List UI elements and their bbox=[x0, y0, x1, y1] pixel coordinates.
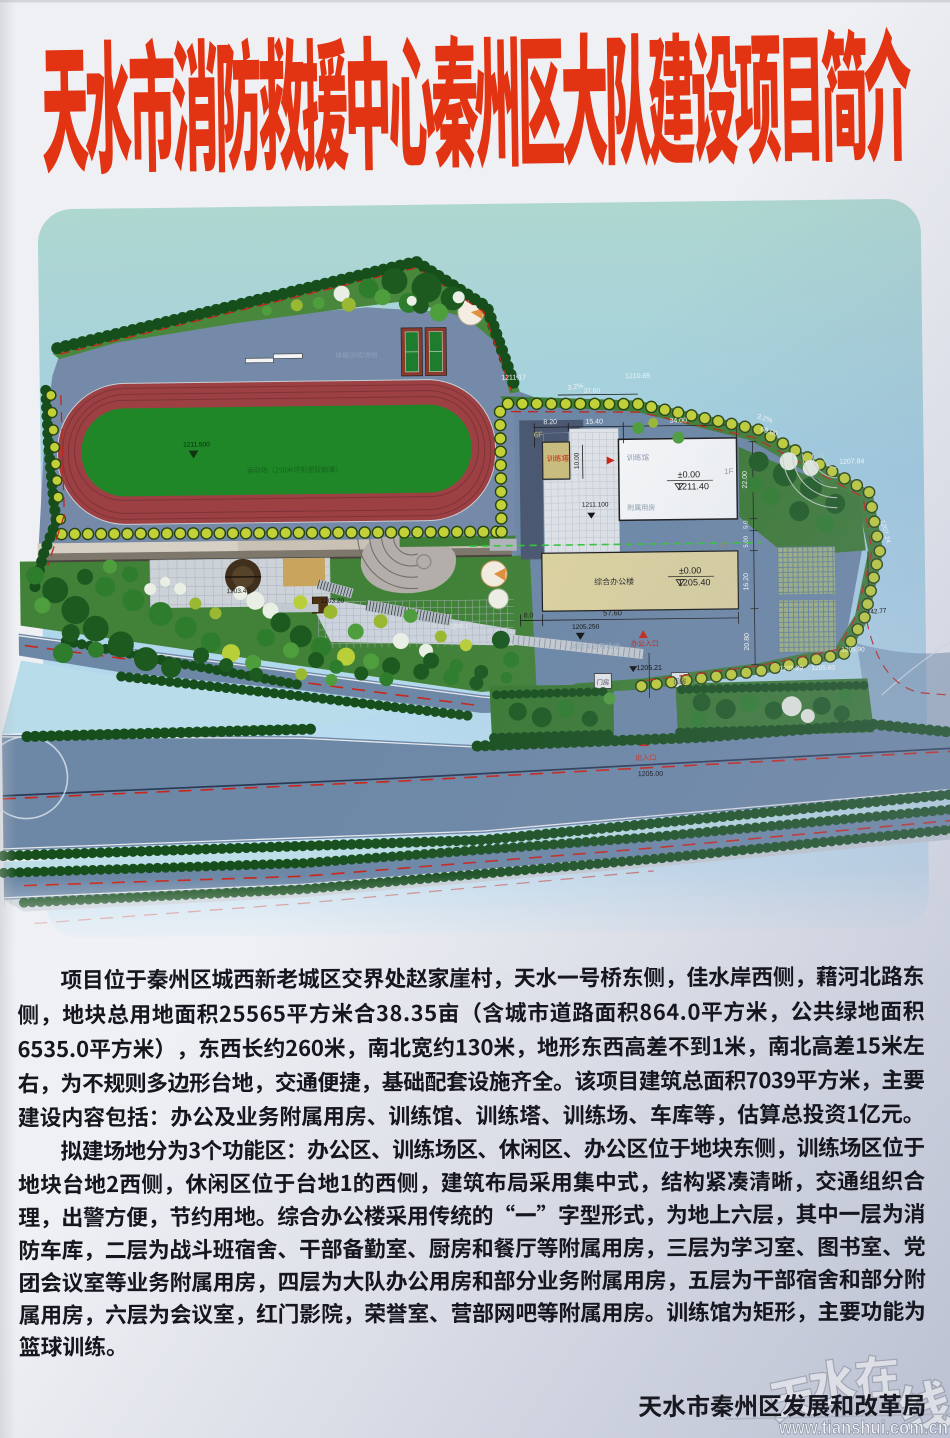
svg-text:1211.17: 1211.17 bbox=[501, 374, 526, 381]
svg-text:10.00: 10.00 bbox=[574, 452, 581, 469]
svg-text:15.40: 15.40 bbox=[585, 419, 603, 426]
svg-text:±0.00: ±0.00 bbox=[678, 469, 701, 479]
svg-text:34.00: 34.00 bbox=[669, 417, 687, 424]
svg-text:20.80: 20.80 bbox=[744, 633, 751, 651]
svg-text:1205.90: 1205.90 bbox=[841, 646, 865, 653]
svg-text:1205.1: 1205.1 bbox=[449, 624, 468, 630]
svg-text:1205.00: 1205.00 bbox=[638, 771, 663, 778]
svg-text:16.20: 16.20 bbox=[743, 573, 750, 591]
svg-text:22.00: 22.00 bbox=[742, 471, 749, 489]
svg-text:1205.250: 1205.250 bbox=[572, 624, 600, 631]
svg-text:1205.60: 1205.60 bbox=[811, 665, 835, 672]
svg-text:8.20: 8.20 bbox=[543, 419, 557, 426]
svg-text:42.77: 42.77 bbox=[870, 607, 887, 615]
svg-text:6F: 6F bbox=[534, 430, 544, 439]
svg-text:1211.40: 1211.40 bbox=[677, 481, 709, 491]
svg-text:37.60: 37.60 bbox=[584, 388, 601, 395]
svg-text:5.00: 5.00 bbox=[744, 535, 750, 547]
svg-text:6F: 6F bbox=[719, 541, 729, 550]
svg-text:±0.00: ±0.00 bbox=[679, 565, 702, 575]
svg-text:1211.500: 1211.500 bbox=[183, 441, 210, 448]
svg-text:1203.20: 1203.20 bbox=[321, 598, 345, 605]
svg-text:1203.40: 1203.40 bbox=[226, 588, 250, 595]
svg-text:1207.84: 1207.84 bbox=[839, 458, 864, 465]
svg-text:5.0: 5.0 bbox=[743, 520, 749, 529]
svg-text:57.60: 57.60 bbox=[603, 608, 622, 617]
svg-text:1205.29: 1205.29 bbox=[779, 665, 803, 672]
svg-text:1210.65: 1210.65 bbox=[625, 373, 650, 380]
svg-text:1211.100: 1211.100 bbox=[582, 501, 609, 508]
svg-text:1F: 1F bbox=[724, 467, 734, 476]
svg-text:www.tianshui.com.cn: www.tianshui.com.cn bbox=[778, 1417, 948, 1438]
svg-text:1205.21: 1205.21 bbox=[637, 665, 662, 672]
svg-text:8.0: 8.0 bbox=[524, 612, 534, 619]
